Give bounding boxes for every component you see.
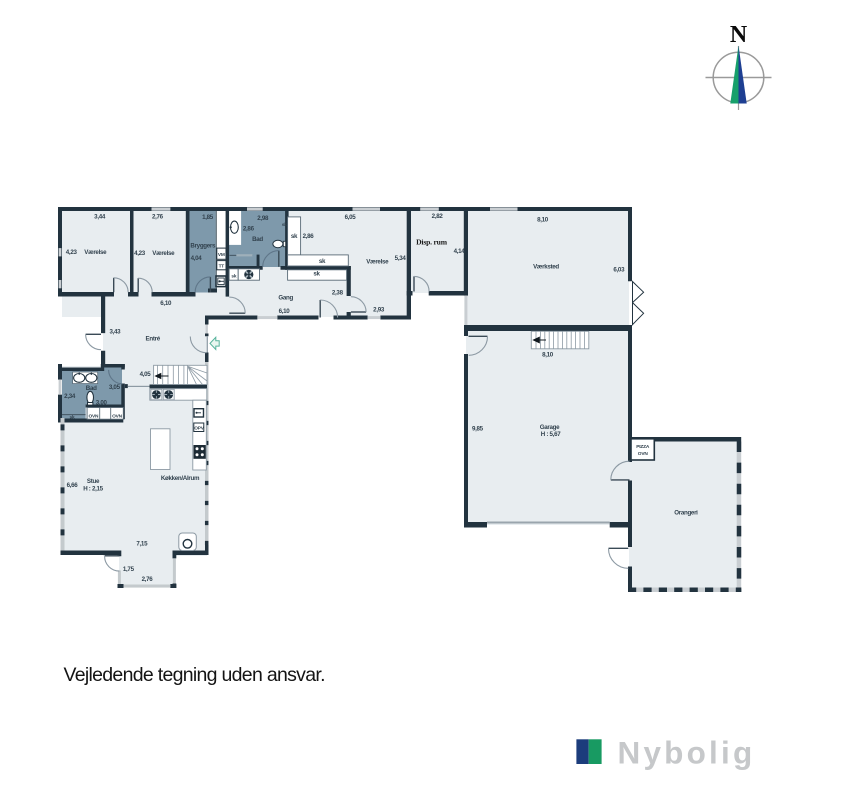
svg-text:TT: TT [219,264,225,270]
svg-text:H : 2,15: H : 2,15 [83,486,103,493]
svg-text:Værelse: Værelse [152,250,175,257]
svg-text:2,93: 2,93 [373,306,385,313]
svg-text:OPV: OPV [194,426,205,432]
svg-text:sk: sk [291,233,298,240]
svg-text:Garage: Garage [540,424,560,431]
svg-text:PIZZA: PIZZA [636,444,650,450]
svg-text:OVN: OVN [638,451,649,457]
svg-text:6,10: 6,10 [279,308,291,315]
svg-text:1,85: 1,85 [202,214,214,221]
svg-text:6,05: 6,05 [345,214,357,221]
svg-text:4,05: 4,05 [140,371,152,378]
svg-text:Vejledende tegning uden ansvar: Vejledende tegning uden ansvar. [64,664,325,686]
svg-text:2,82: 2,82 [432,213,444,220]
svg-text:Orangeri: Orangeri [674,510,698,517]
svg-text:2,34: 2,34 [64,393,76,400]
svg-text:7,15: 7,15 [136,540,148,547]
svg-text:5,34: 5,34 [395,255,407,262]
svg-text:Værelse: Værelse [366,258,389,265]
svg-text:8,10: 8,10 [537,216,549,223]
svg-text:3,44: 3,44 [94,214,106,221]
svg-text:Entré: Entré [146,335,161,342]
svg-text:VM: VM [218,252,225,258]
svg-text:OVN: OVN [89,413,100,419]
svg-text:Bad: Bad [252,236,263,243]
svg-text:Køkken/Alrum: Køkken/Alrum [161,475,200,482]
svg-text:H : 5,67: H : 5,67 [541,431,561,438]
svg-text:sk: sk [319,258,326,265]
svg-text:N: N [730,22,748,48]
svg-text:sk: sk [231,274,236,280]
svg-text:9,85: 9,85 [472,425,484,432]
svg-text:3,43: 3,43 [109,328,121,335]
svg-text:2,76: 2,76 [142,576,154,583]
svg-text:Gang: Gang [278,295,293,302]
svg-text:2,38: 2,38 [332,289,344,296]
svg-text:sk: sk [282,222,287,228]
svg-text:Bryggers: Bryggers [190,243,216,250]
svg-text:6,03: 6,03 [613,266,625,273]
svg-text:6,66: 6,66 [67,482,79,489]
svg-text:3,05: 3,05 [109,384,121,391]
svg-text:4,14: 4,14 [454,248,466,255]
svg-text:4,04: 4,04 [191,255,203,262]
svg-text:6,10: 6,10 [160,300,172,307]
svg-text:2,76: 2,76 [152,213,164,220]
svg-text:Bad: Bad [86,385,97,392]
svg-text:sk: sk [313,271,320,278]
svg-text:Stue: Stue [87,478,100,485]
svg-text:Værelse: Værelse [84,249,107,256]
svg-text:2,98: 2,98 [257,215,269,222]
svg-text:2,86: 2,86 [243,225,255,232]
svg-text:4,23: 4,23 [134,250,146,257]
svg-text:Værksted: Værksted [533,264,559,271]
svg-text:4,23: 4,23 [66,249,78,256]
svg-text:1,75: 1,75 [123,566,135,573]
svg-text:Nybolig: Nybolig [618,735,756,771]
svg-text:2,86: 2,86 [303,233,315,240]
svg-text:3,00: 3,00 [96,400,108,407]
svg-text:8,10: 8,10 [542,351,554,358]
svg-text:sk: sk [70,414,75,420]
svg-text:OVN: OVN [112,413,123,419]
svg-text:Disp. rum: Disp. rum [416,238,448,247]
